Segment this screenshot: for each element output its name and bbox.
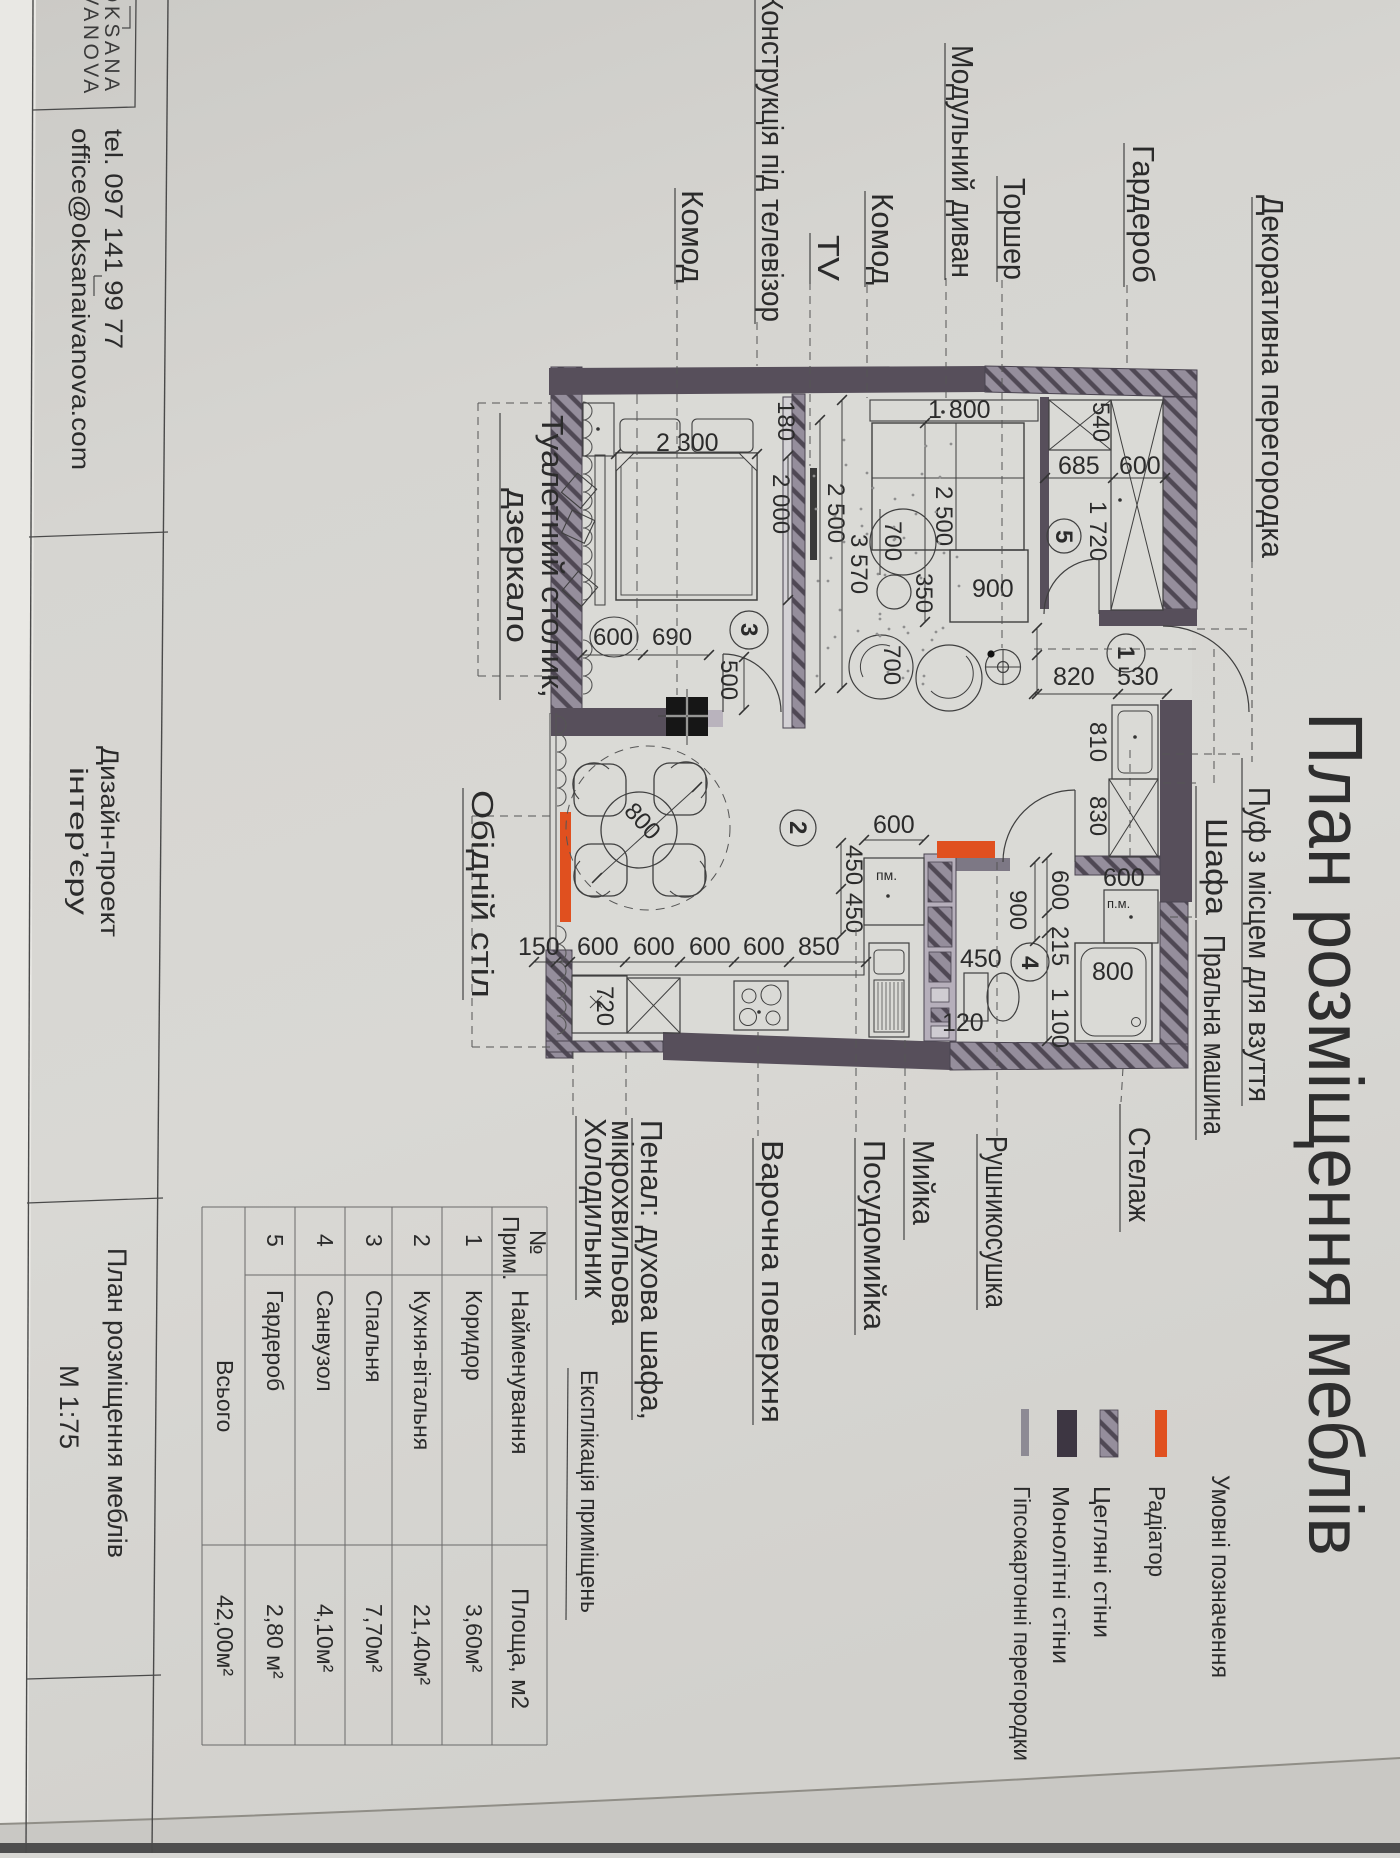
svg-text:900: 900 [1004,890,1031,930]
svg-text:2 500: 2 500 [822,483,849,543]
svg-text:600: 600 [577,933,619,961]
svg-text:850: 850 [798,933,840,961]
svg-text:810: 810 [1084,722,1111,762]
svg-text:Гіпсокартонні перегородки: Гіпсокартонні перегородки [1009,1486,1035,1761]
svg-text:пм.: пм. [876,867,897,883]
svg-text:685: 685 [1058,452,1100,480]
svg-text:600: 600 [633,933,675,961]
svg-text:Туалетний столик,: Туалетний столик, [535,415,570,698]
svg-text:5: 5 [262,1234,288,1247]
svg-text:720: 720 [591,986,618,1026]
svg-text:120: 120 [942,1009,984,1037]
svg-text:Експлікація приміщень: Експлікація приміщень [575,1370,602,1613]
svg-text:700: 700 [879,521,906,561]
svg-text:2 500: 2 500 [930,486,957,546]
svg-text:Гардероб: Гардероб [1126,145,1161,283]
svg-text:Гардероб: Гардероб [262,1290,288,1391]
svg-text:600: 600 [873,811,915,839]
svg-text:1: 1 [461,1234,487,1247]
svg-text:Санвузол: Санвузол [312,1290,338,1392]
svg-text:дзеркало: дзеркало [500,488,535,643]
svg-text:Обідній стіл: Обідній стіл [465,790,500,998]
svg-text:Коридор: Коридор [461,1290,487,1381]
svg-text:350: 350 [910,573,937,613]
svg-text:830: 830 [1084,796,1111,836]
svg-text:Мийка: Мийка [906,1140,941,1226]
svg-text:tel. 097 141 99 77: tel. 097 141 99 77 [99,129,127,349]
svg-text:800: 800 [1092,958,1134,986]
svg-text:Комод: Комод [865,193,900,285]
svg-text:Стелаж: Стелаж [1122,1127,1157,1222]
svg-text:2 000: 2 000 [767,474,794,534]
svg-text:42,00м²: 42,00м² [212,1595,238,1676]
svg-text:820: 820 [1053,663,1095,691]
svg-text:План розміщення меблів: План розміщення меблів [1292,712,1378,1556]
svg-text:№: № [525,1230,551,1255]
svg-text:180: 180 [772,401,799,441]
svg-text:Конструкція під телевізор: Конструкція під телевізор [755,0,790,322]
svg-text:4: 4 [312,1234,338,1247]
svg-text:Кухня-вітальня: Кухня-вітальня [409,1290,435,1450]
svg-text:600: 600 [689,933,731,961]
svg-text:690: 690 [652,624,692,651]
svg-text:Умовні позначення: Умовні позначення [1206,1475,1234,1678]
svg-text:600: 600 [1046,870,1073,910]
svg-text:3: 3 [735,623,762,636]
svg-text:Рушникосушка: Рушникосушка [979,1136,1014,1309]
svg-text:450: 450 [840,845,867,885]
svg-text:150: 150 [518,933,560,961]
svg-text:Варочна поверхня: Варочна поверхня [755,1140,790,1423]
svg-text:Дизайн-проект: Дизайн-проект [95,746,123,938]
svg-text:інтерʼєру: інтерʼєру [64,767,92,916]
svg-text:450: 450 [840,893,867,933]
svg-text:office@oksanaivanova.com: office@oksanaivanova.com [66,128,94,470]
svg-text:TV: TV [811,235,846,281]
svg-text:3,60м²: 3,60м² [461,1604,487,1673]
svg-text:Радіатор: Радіатор [1144,1486,1170,1577]
svg-text:Всього: Всього [212,1360,238,1432]
svg-text:540: 540 [1087,402,1114,442]
svg-text:1 720: 1 720 [1084,501,1111,561]
svg-text:Шафа: Шафа [1199,818,1234,916]
svg-text:21,40м²: 21,40м² [409,1604,435,1685]
svg-text:900: 900 [972,575,1014,603]
svg-text:1 800: 1 800 [928,396,991,424]
svg-text:Пуф з місцем для взуття: Пуф з місцем для взуття [1242,787,1277,1102]
svg-text:450: 450 [960,945,1002,973]
svg-text:600: 600 [593,624,633,651]
svg-text:500: 500 [715,660,742,700]
svg-text:Монолітні стіни: Монолітні стіни [1048,1486,1074,1664]
svg-text:7,70м²: 7,70м² [361,1604,387,1673]
svg-text:1: 1 [1112,646,1139,659]
svg-text:2: 2 [784,821,811,834]
svg-text:Пральна машина: Пральна машина [1197,935,1232,1136]
svg-text:4: 4 [1016,956,1043,970]
svg-text:Прим.: Прим. [498,1216,524,1280]
svg-text:Найменування: Найменування [506,1290,533,1455]
svg-text:п.м.: п.м. [1107,896,1130,911]
svg-text:М 1:75: М 1:75 [54,1365,84,1449]
svg-text:Цегляні стіни: Цегляні стіни [1089,1486,1115,1638]
svg-text:2 300: 2 300 [656,429,719,457]
svg-text:530: 530 [1117,663,1159,691]
svg-text:Холодильник: Холодильник [578,1118,613,1298]
svg-text:2,80 м²: 2,80 м² [262,1604,288,1679]
svg-text:3: 3 [361,1234,387,1247]
svg-text:Комод: Комод [675,190,710,283]
svg-text:5: 5 [1050,530,1077,543]
svg-text:3 570: 3 570 [845,534,872,594]
svg-text:600: 600 [1103,864,1145,892]
svg-text:План розміщення меблів: План розміщення меблів [102,1248,132,1558]
svg-text:4,10м²: 4,10м² [312,1604,338,1673]
svg-text:Торшер: Торшер [997,178,1032,280]
svg-text:Декоративна перегородка: Декоративна перегородка [1255,195,1290,559]
svg-text:Посудомийка: Посудомийка [857,1140,892,1331]
svg-text:700: 700 [878,645,905,685]
svg-text:Модульний диван: Модульний диван [945,45,980,278]
svg-text:IVANOVA: IVANOVA [79,0,102,97]
svg-text:Спальня: Спальня [361,1290,387,1382]
svg-text:215: 215 [1046,926,1073,966]
svg-text:OKSANA: OKSANA [100,0,123,95]
svg-text:600: 600 [743,933,785,961]
svg-text:Площа, м2: Площа, м2 [506,1588,533,1709]
svg-text:2: 2 [409,1234,435,1247]
